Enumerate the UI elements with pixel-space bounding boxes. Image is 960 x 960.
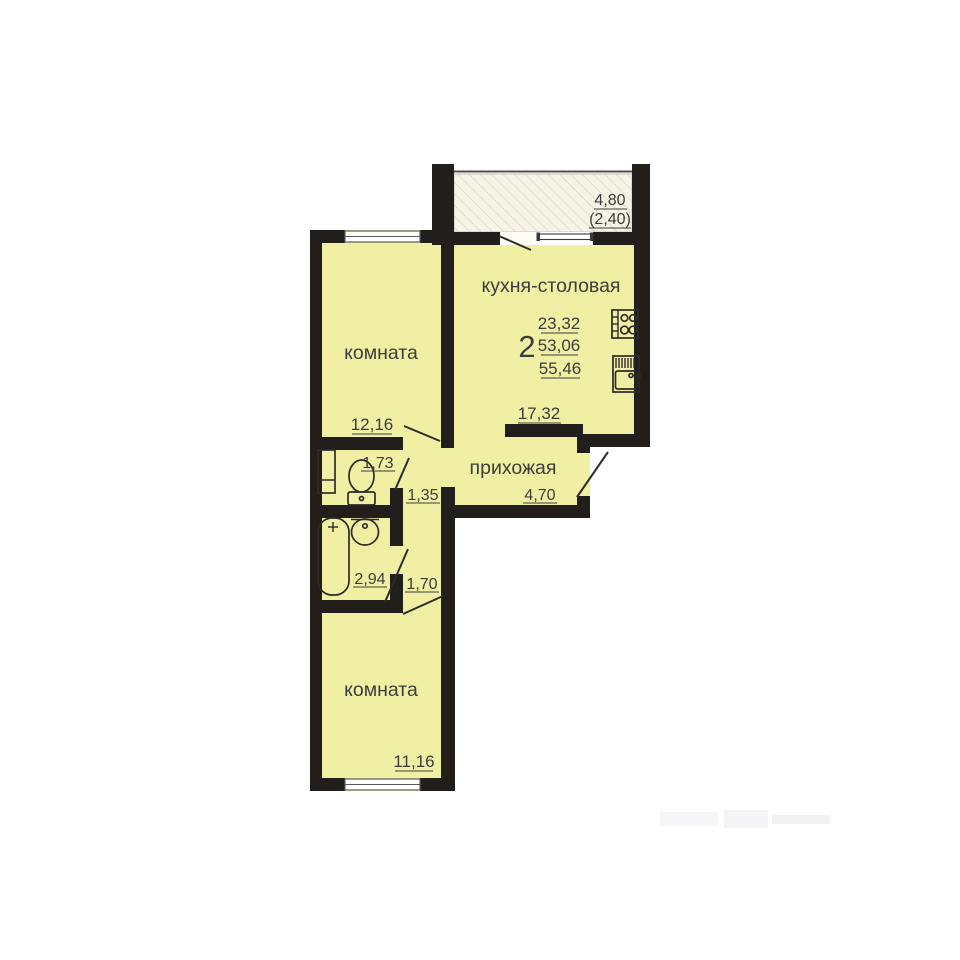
room-bottom-area: 11,16 <box>393 752 434 771</box>
summary-figure-1: 23,32 <box>538 314 581 333</box>
floor-plan-page: 4,80 (2,40) кухня-столовая 2 23,32 53,06… <box>0 0 960 960</box>
room-top-area: 12,16 <box>351 415 394 434</box>
window-room-bottom <box>345 779 420 790</box>
bathroom-area: 2,94 <box>354 571 385 588</box>
wall-segment <box>390 518 403 546</box>
wc-area: 1,73 <box>362 455 393 472</box>
wall-segment <box>577 437 590 453</box>
wall-segment <box>310 437 403 450</box>
kitchen-label: кухня-столовая <box>482 275 621 297</box>
wall-segment <box>505 424 583 437</box>
balcony-reduced: (2,40) <box>589 211 631 228</box>
sink-drainer <box>616 358 634 368</box>
room-top-label: комната <box>344 342 418 364</box>
window-room-top <box>345 231 420 242</box>
wall-segment <box>593 232 636 245</box>
room-bottom-label: комната <box>344 679 418 701</box>
balcony-length: 4,80 <box>594 192 625 209</box>
wall-segment <box>441 230 454 448</box>
kitchen-area: 17,32 <box>518 404 561 423</box>
wall-segment <box>310 230 345 243</box>
wall-segment <box>310 505 403 518</box>
wall-segment <box>310 778 345 791</box>
rooms-count: 2 <box>518 329 535 364</box>
window-kitchen-balcony <box>537 232 594 245</box>
corridor-lower-area: 1,70 <box>406 576 437 593</box>
wall-segment <box>634 232 650 447</box>
floor-plan: 4,80 (2,40) кухня-столовая 2 23,32 53,06… <box>0 0 960 960</box>
summary-figure-3: 55,46 <box>539 359 582 378</box>
hall-area: 4,70 <box>524 487 555 504</box>
wall-segment <box>390 488 403 505</box>
wall-segment <box>310 600 403 613</box>
hall-label: прихожая <box>470 457 557 479</box>
wall-segment <box>443 232 500 245</box>
corridor-upper-area: 1,35 <box>407 487 438 504</box>
wall-segment <box>583 434 650 447</box>
wall-segment <box>441 487 455 791</box>
wall-segment <box>443 505 590 518</box>
summary-figure-2: 53,06 <box>538 336 581 355</box>
wall-segment <box>420 778 455 791</box>
